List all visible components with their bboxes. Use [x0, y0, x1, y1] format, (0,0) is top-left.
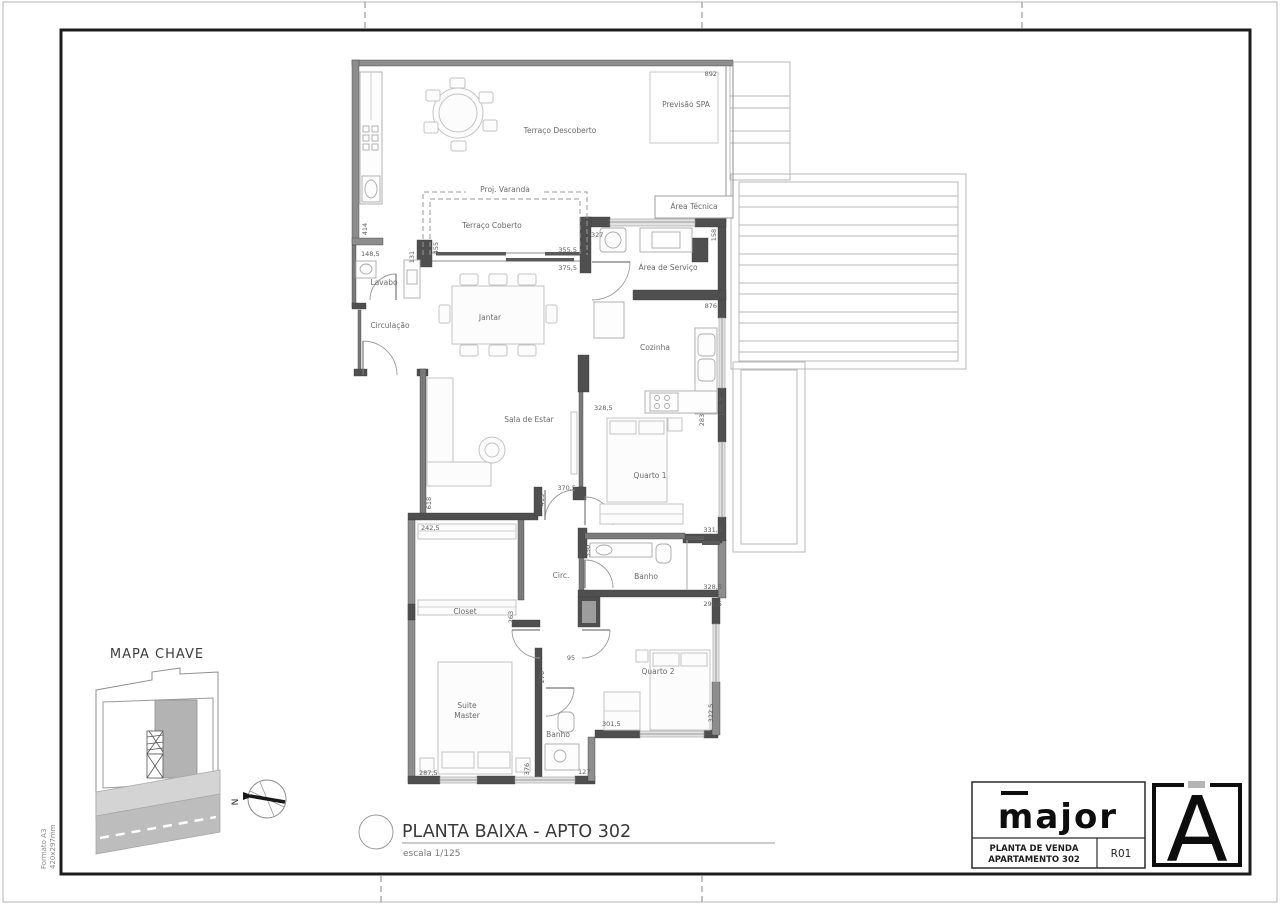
doc-title-line2: APARTAMENTO 302: [988, 855, 1080, 865]
label-quarto2: Quarto 2: [641, 667, 674, 676]
dim-322-5: 322,5: [707, 704, 715, 723]
label-previsao-spa: Previsão SPA: [662, 100, 711, 109]
dim-158: 158: [710, 229, 718, 241]
brand-mark-letter: A: [1166, 778, 1228, 883]
dim-331-5: 331,5: [703, 526, 722, 534]
dim-148-5: 148,5: [361, 250, 380, 258]
dim-327: 327: [591, 231, 603, 239]
brand-logo-macron: [1001, 791, 1028, 795]
plan-scale: escala 1/125: [403, 849, 461, 859]
dim-242-5: 242,5: [421, 524, 440, 532]
label-lavabo: Lavabo: [370, 278, 398, 287]
label-terraco-coberto: Terraço Coberto: [461, 221, 522, 230]
dim-876: 876: [705, 302, 717, 310]
label-proj-varanda: Proj. Varanda: [480, 185, 530, 194]
dim-283: 283: [698, 414, 706, 426]
key-map-core: [147, 731, 163, 778]
label-jantar: Jantar: [478, 313, 502, 322]
plan-title: PLANTA BAIXA - APTO 302: [402, 822, 631, 842]
label-suite-line2: Master: [454, 711, 481, 720]
dim-328-5-coz: 328,5: [594, 404, 613, 412]
format-line1: Formato A3: [40, 829, 48, 869]
label-circulacao: Circulação: [370, 321, 410, 330]
dim-414: 414: [361, 223, 369, 235]
dim-301-5: 301,5: [602, 720, 621, 728]
dim-287-5: 287,5: [419, 769, 438, 777]
label-area-tecnica: Área Técnica: [670, 202, 717, 211]
label-quarto1: Quarto 1: [633, 471, 666, 480]
label-terraco-descoberto: Terraço Descoberto: [523, 126, 597, 135]
sheet-drawing: Formato A3 420x297mm: [0, 0, 1280, 905]
dim-328-5-banho: 328,5: [703, 583, 722, 591]
dim-166-5: 166,5: [717, 398, 725, 417]
label-banho-suite: Banho: [546, 730, 570, 739]
dim-618: 618: [425, 497, 433, 509]
revision-code: R01: [1111, 848, 1132, 860]
dim-291-5: 291,5: [703, 600, 722, 608]
dim-892: 892: [705, 70, 717, 78]
doc-title-line1: PLANTA DE VENDA: [990, 844, 1079, 854]
label-cozinha: Cozinha: [640, 343, 670, 352]
dim-375-5: 375,5: [558, 264, 577, 272]
dim-127: 127: [578, 768, 590, 776]
margin-format-text: Formato A3 420x297mm: [40, 824, 57, 869]
drawing-sheet: Formato A3 420x297mm: [0, 0, 1280, 905]
format-line2: 420x297mm: [49, 824, 57, 869]
label-sala: Sala de Estar: [504, 415, 554, 424]
brand-logo: major: [998, 791, 1118, 837]
title-block: major PLANTA DE VENDA APARTAMENTO 302 R0…: [972, 778, 1240, 883]
dim-355-5: 355,5: [558, 246, 577, 254]
dim-370-5: 370,5: [557, 484, 576, 492]
dim-263: 263: [507, 611, 515, 623]
dim-131: 131: [408, 251, 416, 263]
label-suite-line1: Suite: [457, 701, 477, 710]
dim-376: 376: [523, 763, 531, 775]
dim-270: 270: [538, 671, 546, 683]
label-circ: Circ.: [553, 571, 570, 580]
dim-330: 330: [584, 545, 592, 557]
key-map-title: MAPA CHAVE: [110, 647, 204, 662]
label-closet: Closet: [453, 607, 476, 616]
dim-415: 415: [538, 494, 546, 506]
brand-logo-text: major: [998, 797, 1118, 837]
label-banho: Banho: [634, 572, 658, 581]
dim-95: 95: [567, 654, 575, 662]
dim-455: 455: [432, 242, 440, 254]
label-area-servico: Área de Serviço: [638, 263, 698, 272]
brand-mark: A: [1154, 778, 1240, 883]
north-label: N: [231, 799, 241, 806]
